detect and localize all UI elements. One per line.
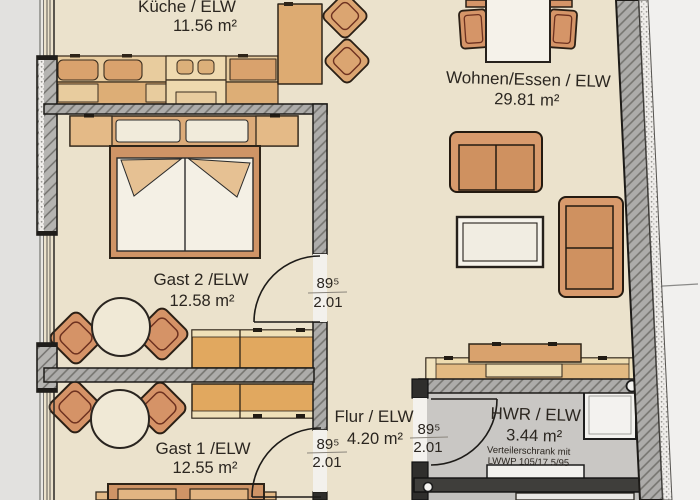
handle-mark [122, 54, 132, 58]
nightstand [256, 116, 298, 146]
handle-mark [253, 414, 262, 418]
handle-mark [70, 54, 80, 58]
coffee-table [457, 217, 543, 267]
room-label-gast2: Gast 2 /ELW [153, 270, 248, 289]
handle-mark [548, 342, 557, 346]
pillow [116, 120, 180, 142]
handle-mark [492, 342, 501, 346]
handle-mark [444, 356, 453, 360]
interior-wall [313, 492, 327, 500]
hwr-wall [412, 379, 428, 398]
pillow [190, 489, 248, 500]
sink-counter [166, 56, 226, 80]
room-area-hwr: 3.44 m² [506, 426, 563, 445]
gast2-wardrobe [192, 328, 314, 368]
room-area-kueche: 11.56 m² [173, 17, 237, 35]
sofa-horizontal [450, 132, 542, 192]
handle-mark [296, 328, 305, 332]
interior-wall [419, 379, 641, 393]
room-label-gast1: Gast 1 /ELW [155, 439, 250, 458]
floor-plan-photo: Küche / ELW 11.56 m² Wohnen/Essen / ELW … [0, 0, 700, 500]
appliance [584, 391, 636, 439]
interior-wall [313, 104, 327, 254]
room-label-flur: Flur / ELW [334, 407, 413, 426]
gast1-bed-cut [96, 484, 276, 500]
wall-hinge-dot [424, 483, 433, 492]
room-area-flur: 4.20 m² [347, 430, 403, 448]
cabinet-block [58, 60, 98, 80]
room-area-wohnen: 29.81 m² [494, 90, 560, 110]
nightstand [264, 492, 276, 500]
gast1-wardrobe [192, 384, 314, 418]
room-area-gast2: 12.58 m² [169, 292, 235, 310]
door-width: 89⁵ [317, 436, 340, 453]
room-label-hwr: HWR / ELW [490, 404, 581, 425]
insulation [39, 58, 44, 233]
handle-mark [296, 414, 305, 418]
cabinet-block [104, 60, 142, 80]
interior-wall [44, 368, 314, 382]
cabinet-block [58, 84, 98, 102]
handle-mark [253, 328, 262, 332]
room-area-gast1: 12.55 m² [172, 459, 238, 477]
handle-mark [238, 54, 248, 58]
handle-mark [598, 356, 607, 360]
cut-furniture-below [516, 493, 634, 500]
hwr-note-line2: LWWP 105/17.5/95 [488, 456, 570, 469]
interior-wall [313, 322, 327, 430]
pillow [118, 489, 176, 500]
dining-table [486, 0, 550, 62]
round-table [91, 390, 149, 448]
nightstand [96, 492, 108, 500]
left-paper-margin [0, 0, 40, 500]
door-width: 89⁵ [418, 421, 441, 438]
nightstand [70, 116, 112, 146]
tall-cabinet [278, 4, 322, 84]
door-height: 2.01 [312, 454, 341, 471]
door-width: 89⁵ [317, 275, 340, 292]
handle-mark [284, 2, 293, 6]
sofa-vertical [559, 197, 623, 297]
sink-cabinet-front [176, 92, 216, 104]
interior-wall [44, 104, 327, 114]
floor-plan-drawing: Küche / ELW 11.56 m² Wohnen/Essen / ELW … [0, 0, 700, 500]
hwr-wall [414, 478, 648, 492]
door-height: 2.01 [413, 439, 442, 456]
dining-chair-cut [466, 0, 488, 7]
room-label-kueche: Küche / ELW [138, 0, 236, 16]
sink-basin [198, 60, 214, 74]
cabinet-block [230, 59, 276, 80]
dining-chair-cut [550, 0, 572, 7]
pillow [186, 120, 248, 142]
sink-basin [177, 60, 193, 74]
door-height: 2.01 [313, 294, 342, 311]
round-table [92, 298, 150, 356]
